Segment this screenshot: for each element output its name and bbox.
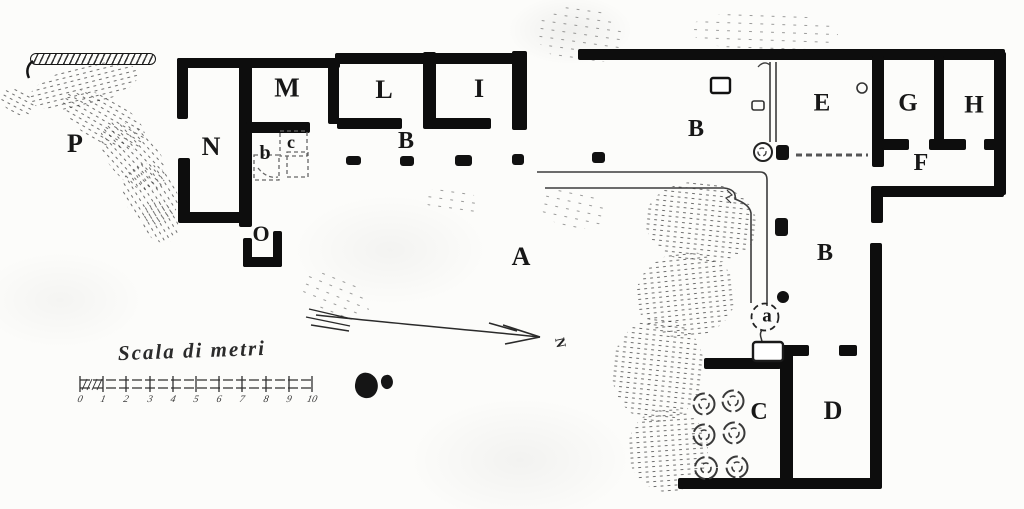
- room-label-B-portico: B: [398, 129, 414, 153]
- room-label-A: A: [512, 244, 531, 270]
- room-label-c: c: [287, 133, 295, 151]
- room-label-D: D: [824, 398, 843, 424]
- gutter-line: [537, 62, 776, 306]
- room-label-M: M: [274, 75, 299, 102]
- room-label-P: P: [67, 131, 83, 157]
- dolia-circles: [694, 391, 748, 480]
- room-label-B-lower: B: [817, 241, 833, 265]
- room-label-H: H: [964, 93, 983, 118]
- scale-bar: [80, 376, 312, 392]
- north-arrow: [306, 309, 540, 344]
- room-label-a: a: [762, 307, 772, 326]
- site-plan: P N M b c O B L I B A E G H F B a C D N …: [0, 0, 1024, 509]
- room-label-F: F: [914, 151, 929, 175]
- scale-title: Scala di metri: [118, 336, 267, 366]
- small-circle-e: [857, 83, 867, 93]
- room-label-L: L: [375, 77, 392, 103]
- ruined-wall-hook: [27, 61, 33, 78]
- small-basin: [752, 101, 764, 110]
- room-label-G: G: [898, 91, 917, 116]
- room-label-I: I: [474, 76, 484, 102]
- cistern-mouth: [711, 78, 730, 93]
- room-label-N: N: [202, 134, 221, 160]
- room-label-O: O: [252, 223, 269, 245]
- basin: [753, 342, 783, 361]
- room-label-b: b: [259, 143, 270, 163]
- room-label-B-courtyard: B: [688, 117, 704, 141]
- round-pier: [777, 291, 789, 303]
- well-circle: [754, 143, 772, 161]
- room-label-E: E: [814, 91, 831, 116]
- room-label-C: C: [750, 400, 767, 424]
